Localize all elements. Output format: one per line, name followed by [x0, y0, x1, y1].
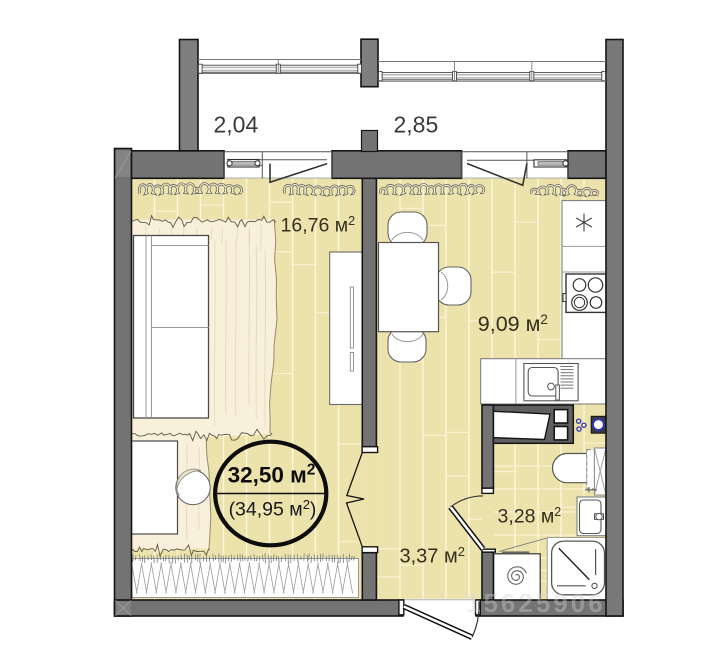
svg-text:15625906: 15625906: [466, 588, 606, 618]
svg-text:3,37 м2: 3,37 м2: [400, 544, 465, 568]
svg-text:2,04: 2,04: [214, 112, 259, 138]
svg-text:16,76 м2: 16,76 м2: [281, 214, 356, 237]
svg-text:3,28 м2: 3,28 м2: [498, 505, 562, 528]
svg-text:32,50 м2: 32,50 м2: [228, 462, 316, 488]
svg-text:9,09 м2: 9,09 м2: [478, 312, 548, 336]
svg-text:2,85: 2,85: [394, 112, 439, 138]
